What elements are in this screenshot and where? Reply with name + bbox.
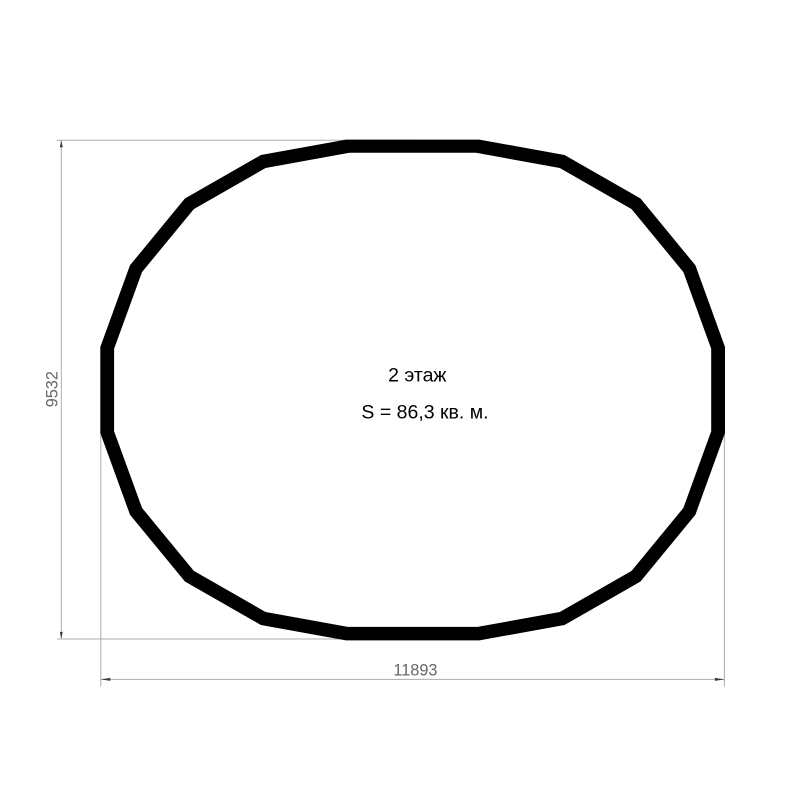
svg-text:2 этаж: 2 этаж (388, 365, 446, 387)
svg-text:9532: 9532 (44, 371, 62, 407)
svg-text:S = 86,3 кв. м.: S = 86,3 кв. м. (361, 402, 488, 424)
svg-text:11893: 11893 (393, 661, 437, 679)
